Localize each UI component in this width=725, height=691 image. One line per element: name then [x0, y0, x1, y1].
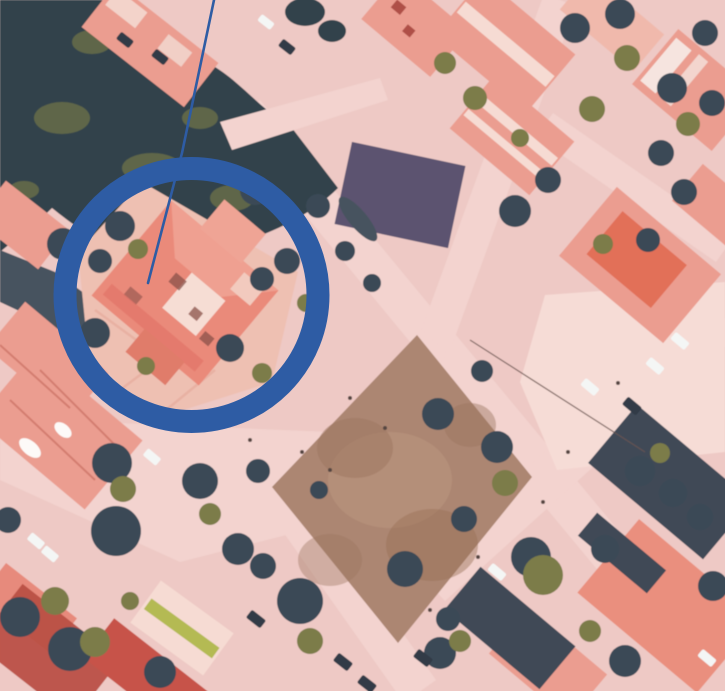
tree — [605, 0, 635, 29]
tree — [657, 73, 687, 103]
photo-layer — [0, 0, 725, 691]
tree — [434, 52, 456, 74]
tree — [246, 459, 270, 483]
tree — [128, 239, 148, 259]
tree — [636, 228, 660, 252]
tree — [676, 112, 700, 136]
tree — [650, 443, 670, 463]
aerial-photo-canvas — [0, 0, 725, 691]
tree — [387, 551, 423, 587]
tree — [625, 456, 655, 486]
tree — [492, 470, 518, 496]
tree — [535, 167, 561, 193]
tree — [121, 592, 139, 610]
dirt-lot-shade-patch — [298, 534, 362, 586]
tree — [523, 555, 563, 595]
tree — [593, 234, 613, 254]
tree — [648, 140, 674, 166]
tree — [471, 360, 493, 382]
tree — [41, 587, 69, 615]
tree — [144, 656, 176, 688]
tree — [692, 20, 718, 46]
speck — [616, 381, 620, 385]
tree — [277, 578, 323, 624]
tree — [306, 194, 330, 218]
tree — [88, 249, 112, 273]
forest-blob — [318, 20, 346, 42]
speck — [476, 555, 480, 559]
tree — [451, 506, 477, 532]
tree — [671, 179, 697, 205]
speck — [328, 468, 332, 472]
tree — [591, 535, 619, 563]
tree — [310, 481, 328, 499]
tree — [335, 241, 355, 261]
speck — [541, 500, 545, 504]
tree — [560, 13, 590, 43]
tree — [699, 90, 725, 116]
tree — [297, 628, 323, 654]
tree — [614, 45, 640, 71]
speck — [248, 438, 252, 442]
tree — [250, 267, 274, 291]
tree — [481, 431, 513, 463]
tree — [579, 96, 605, 122]
tree — [250, 553, 276, 579]
tree — [499, 195, 531, 227]
tree — [609, 645, 641, 677]
tree — [511, 129, 529, 147]
tree — [80, 627, 110, 657]
tree — [199, 503, 221, 525]
speck — [383, 426, 387, 430]
tree — [91, 506, 141, 556]
tree — [0, 597, 40, 637]
tree — [436, 607, 460, 631]
tree — [216, 334, 244, 362]
tree — [363, 274, 381, 292]
tree — [579, 620, 601, 642]
tree — [137, 357, 155, 375]
tree — [110, 476, 136, 502]
speck — [428, 608, 432, 612]
tree — [274, 248, 300, 274]
speck — [300, 450, 304, 454]
speck — [566, 450, 570, 454]
tree — [659, 479, 687, 507]
tree — [422, 398, 454, 430]
speck — [348, 396, 352, 400]
tree — [463, 86, 487, 110]
tree — [449, 630, 471, 652]
aerial-photo-scan — [0, 0, 725, 691]
tree — [105, 211, 135, 241]
olive-patch — [34, 102, 90, 134]
tree — [222, 533, 254, 565]
tree — [687, 504, 713, 530]
tree — [182, 463, 218, 499]
